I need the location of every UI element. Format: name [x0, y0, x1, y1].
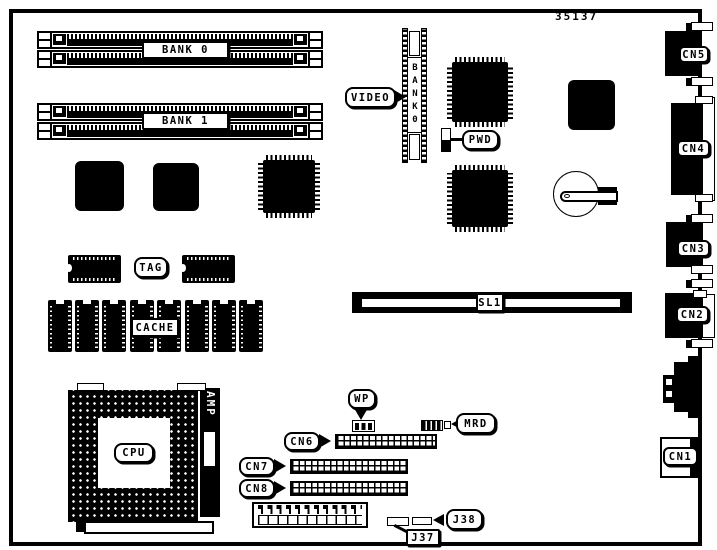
qfp-chip — [258, 155, 320, 218]
edge-tab — [693, 290, 707, 298]
cn6-callout-pointer — [319, 434, 331, 448]
simm-latch — [308, 124, 321, 138]
cache-label: CACHE — [131, 318, 179, 337]
motherboard-diagram: 35137 BANK 0 BANK 1 — [0, 0, 717, 550]
cn6-header — [335, 434, 437, 449]
asic-chip — [153, 163, 199, 211]
jack-connector — [674, 362, 700, 412]
bank0-label: BANK 0 — [142, 41, 229, 59]
qfp-chip — [447, 165, 513, 232]
tag-label: TAG — [134, 257, 168, 278]
jack-opening — [665, 390, 673, 398]
cn7-label: CN7 — [239, 457, 275, 476]
sl1-label: SL1 — [476, 293, 504, 312]
jack-opening — [665, 378, 673, 386]
drawing-number: 35137 — [555, 10, 598, 23]
cn6-label: CN6 — [284, 432, 320, 451]
battery-key — [560, 191, 618, 202]
socket-brand-text: AMP — [204, 391, 217, 417]
cn3-label: CN3 — [677, 240, 710, 257]
key-hole — [564, 194, 570, 198]
simm-hook — [53, 53, 66, 64]
edge-tab — [691, 77, 713, 86]
power-connector — [252, 502, 368, 528]
simm-hook — [53, 34, 66, 45]
edge-nub — [686, 23, 692, 31]
tag-sram-chip — [182, 255, 235, 283]
wp-jumper — [352, 420, 375, 432]
edge-tab — [695, 194, 713, 202]
mrd-jumper-pin — [444, 421, 451, 429]
wp-callout-pointer — [354, 408, 368, 420]
simm-hook — [294, 34, 307, 45]
simm-latch — [39, 33, 52, 47]
simm-hook — [53, 106, 66, 117]
simm-latch — [308, 52, 321, 66]
cache-chip — [48, 300, 72, 352]
j38-pad — [412, 517, 432, 525]
simm-latch — [39, 124, 52, 138]
connector-name-window: BANK0 — [407, 57, 422, 133]
socket-mount-tab — [177, 383, 206, 391]
jack-connector — [688, 410, 700, 418]
simm-hook — [294, 106, 307, 117]
asic-chip — [568, 80, 615, 130]
simm-hook — [294, 125, 307, 136]
chip-notch — [180, 264, 186, 272]
pwd-label: PWD — [462, 130, 499, 150]
edge-nub — [686, 340, 692, 348]
cn8-header — [290, 481, 408, 496]
chip-notch — [66, 264, 72, 272]
edge-tab — [691, 22, 713, 31]
cn8-callout-pointer — [274, 481, 286, 495]
video-label: VIDEO — [345, 87, 396, 108]
edge-nub — [686, 215, 692, 223]
amp-socket-frame: AMP — [200, 388, 220, 517]
simm-latch — [308, 33, 321, 47]
connector-slot — [409, 134, 420, 160]
tag-sram-chip — [68, 255, 121, 283]
cache-chip — [212, 300, 236, 352]
edge-nub — [686, 78, 692, 86]
cpu-label: CPU — [114, 443, 154, 463]
cn8-label: CN8 — [239, 479, 275, 498]
simm-hook — [53, 125, 66, 136]
cache-chip — [102, 300, 126, 352]
qfp-chip — [447, 57, 513, 127]
edge-tab — [691, 214, 713, 223]
cn5-label: CN5 — [679, 46, 709, 63]
cache-chip — [75, 300, 99, 352]
socket-label-window — [204, 432, 215, 466]
cn1-label: CN1 — [663, 447, 698, 466]
socket-lever — [84, 521, 214, 534]
edge-tab — [695, 96, 713, 104]
edge-tab — [691, 339, 713, 348]
socket-mount-tab — [77, 383, 104, 391]
bank1-label: BANK 1 — [142, 112, 229, 130]
connector-slot — [409, 31, 420, 56]
power-pins — [258, 509, 362, 514]
simm-latch — [308, 105, 321, 119]
cpu-socket: CPU — [68, 390, 198, 522]
cache-chip — [239, 300, 263, 352]
cn7-header — [290, 459, 408, 474]
wp-label: WP — [348, 389, 376, 409]
cn2-label: CN2 — [676, 306, 709, 323]
simm-hook — [294, 53, 307, 64]
j38-label: J38 — [446, 509, 483, 530]
edge-tab — [691, 279, 713, 288]
edge-tab — [691, 265, 713, 274]
simm-latch — [39, 105, 52, 119]
mrd-jumper — [421, 420, 443, 431]
asic-chip — [75, 161, 124, 211]
cache-chip — [185, 300, 209, 352]
video-connector-text: BANK0 — [408, 63, 421, 128]
j38-callout-pointer — [433, 514, 444, 526]
j37-label: J37 — [406, 529, 440, 546]
mrd-label: MRD — [456, 413, 496, 434]
simm-latch — [39, 52, 52, 66]
power-pin-cells — [258, 515, 362, 525]
edge-nub — [686, 280, 692, 288]
cn4-label: CN4 — [677, 140, 710, 157]
cn7-callout-pointer — [274, 459, 286, 473]
